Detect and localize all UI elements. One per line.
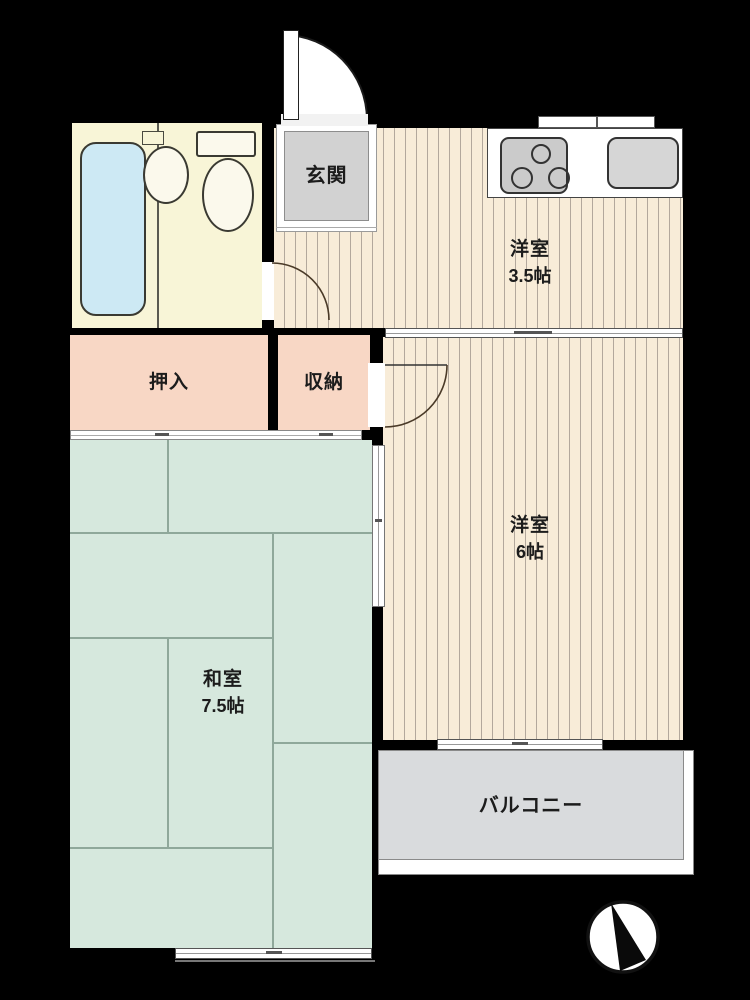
floor-plan: 玄関 押入 収納 bbox=[0, 0, 750, 1000]
japanese-room-window-sill bbox=[175, 960, 375, 962]
storage-door-opening bbox=[368, 363, 385, 427]
kitchen-window bbox=[538, 116, 655, 128]
western-room-35-label: 洋室 3.5帖 bbox=[455, 234, 605, 292]
bathtub-icon bbox=[80, 142, 146, 316]
japanese-room-window bbox=[175, 948, 372, 959]
balcony-label: バルコニー bbox=[431, 785, 631, 827]
kitchen-counter bbox=[487, 128, 683, 198]
toilet-icon bbox=[202, 158, 254, 232]
sliding-door-washitsu-yoshitsu bbox=[372, 445, 385, 607]
kitchen-sink-icon bbox=[607, 137, 679, 189]
compass-north-icon bbox=[588, 902, 658, 972]
washbasin-icon bbox=[143, 146, 189, 204]
oshiire-fusuma bbox=[70, 430, 362, 440]
bathroom-door-opening bbox=[262, 262, 274, 320]
japanese-room-label: 和室 7.5帖 bbox=[168, 664, 278, 722]
stove-icon bbox=[500, 137, 568, 194]
toilet-tank bbox=[196, 131, 256, 157]
western-room-6-label: 洋室 6帖 bbox=[465, 510, 595, 568]
washbasin-shelf bbox=[142, 131, 164, 145]
entrance-door-leaf bbox=[283, 30, 299, 120]
genkan-label: 玄関 bbox=[284, 131, 369, 221]
bathroom bbox=[72, 123, 262, 328]
genkan-step-edge bbox=[276, 227, 377, 228]
partition-western-rooms bbox=[385, 328, 683, 338]
oshiire-label: 押入 bbox=[70, 335, 268, 430]
balcony-window bbox=[437, 739, 603, 750]
storage-label: 収納 bbox=[278, 335, 370, 430]
